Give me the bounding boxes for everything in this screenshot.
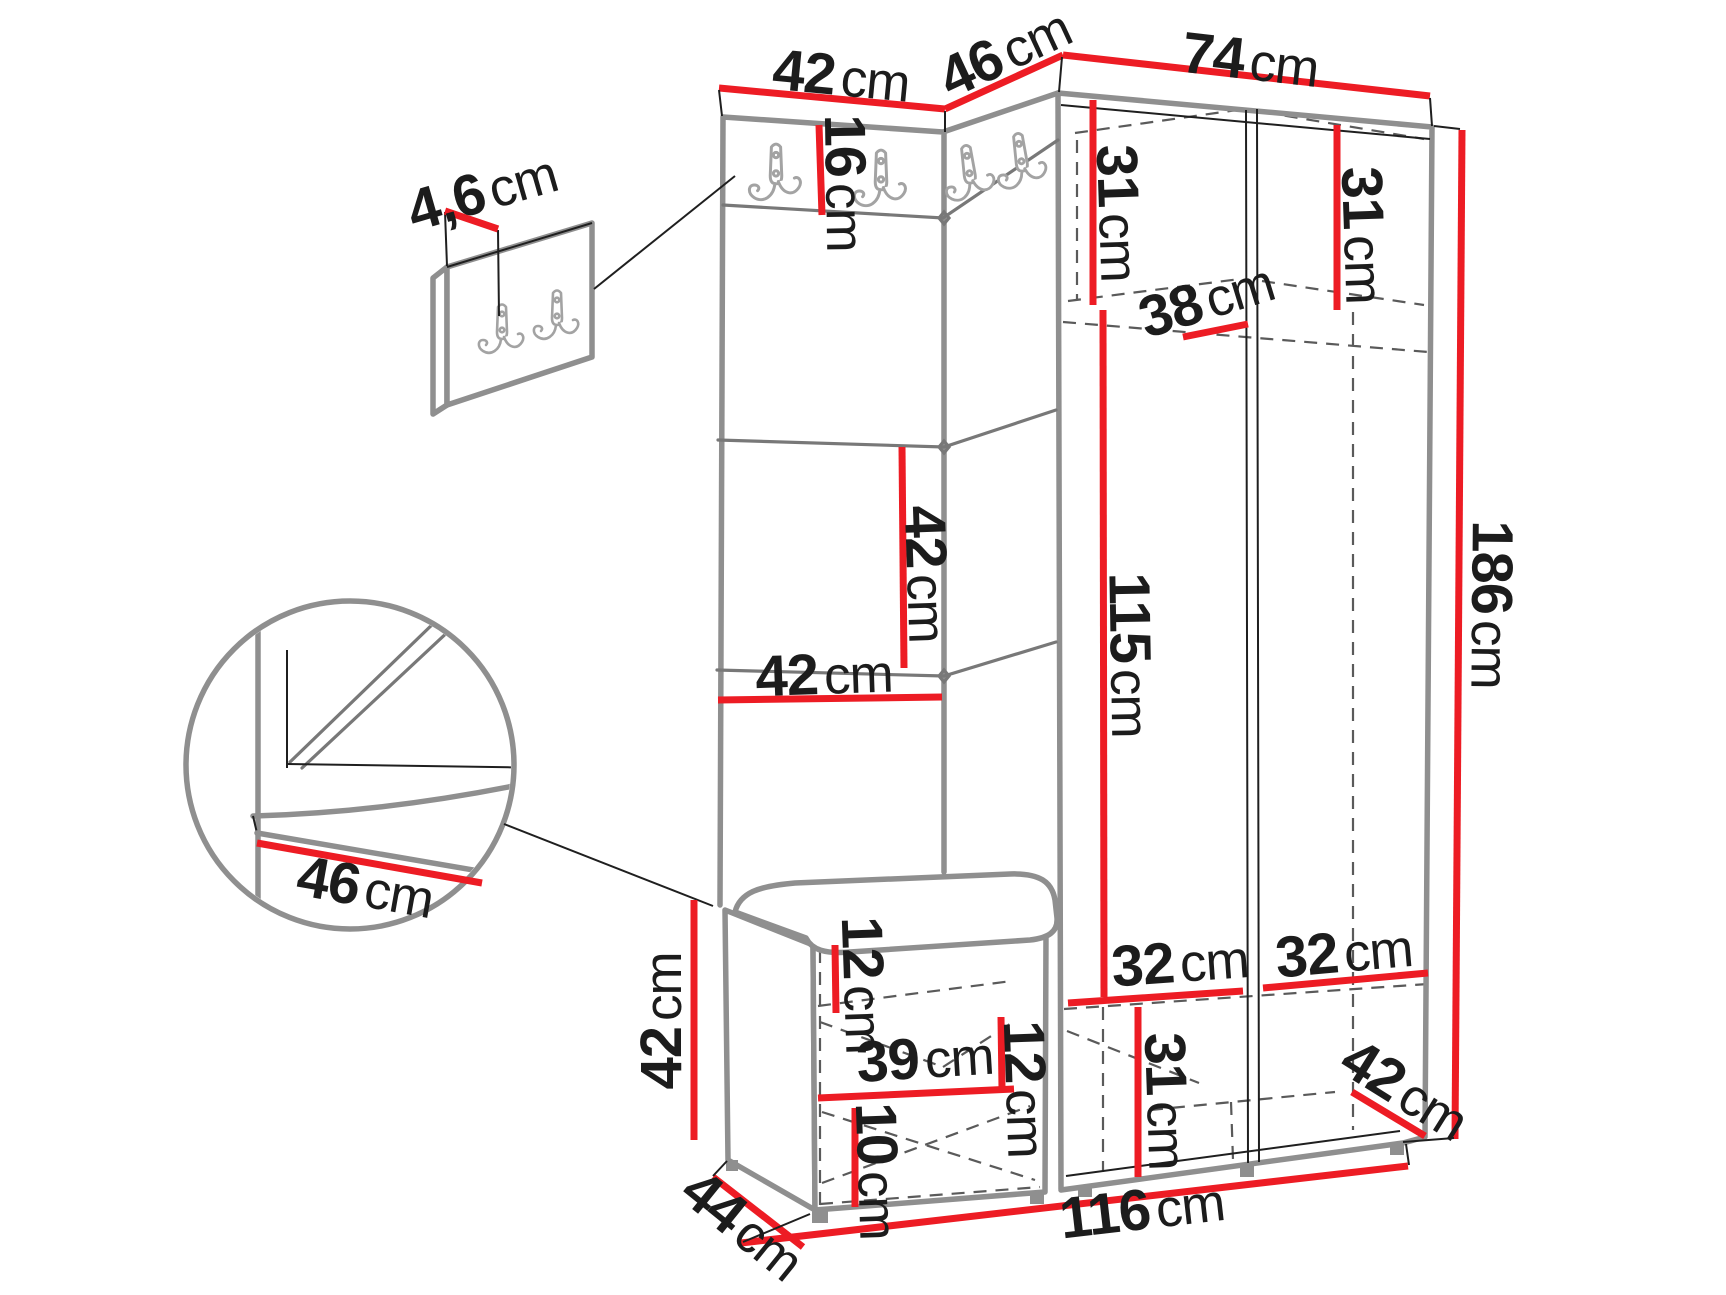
dim-value: 42 xyxy=(629,1027,694,1090)
dim-label-bottom-section-height: 31 cm xyxy=(1132,1031,1202,1170)
dim-value: 31 xyxy=(1132,1031,1199,1096)
dim-unit: cm xyxy=(994,1088,1055,1159)
dim-unit: cm xyxy=(1153,1173,1228,1239)
dim-unit: cm xyxy=(360,860,438,930)
dim-unit: cm xyxy=(846,1170,907,1241)
dim-value: 12 xyxy=(829,915,896,980)
dim-value: 31 xyxy=(1084,143,1151,208)
dim-value: 32 xyxy=(1109,930,1176,999)
bench-foot xyxy=(726,1160,738,1171)
dim-label-top-shelf-left-height: 31 cm xyxy=(1084,143,1154,282)
dim-value: 12 xyxy=(991,1019,1058,1084)
dim-unit: cm xyxy=(895,573,956,644)
dim-label-bench-shelf-offset: 12 cm xyxy=(991,1019,1061,1158)
dim-value: 42 xyxy=(892,504,959,569)
dim-unit: cm xyxy=(634,952,693,1021)
dim-label-bench-bottom-height: 10 cm xyxy=(843,1101,913,1240)
circle-leader-line xyxy=(504,824,713,906)
dim-value: 186 xyxy=(1459,520,1525,614)
dim-label-hook-panel-thickness: 4,6 cm xyxy=(400,140,564,244)
dim-label-cushion-height: 42 cm xyxy=(892,504,962,643)
dim-unit: cm xyxy=(1087,212,1148,283)
dim-value: 42 xyxy=(770,37,838,108)
dim-unit: cm xyxy=(482,144,564,220)
dim-unit: cm xyxy=(993,0,1080,81)
dim-value: 115 xyxy=(1096,572,1163,664)
bench-foot xyxy=(812,1210,828,1223)
dim-label-open-section-height: 115 cm xyxy=(1096,572,1164,738)
dim-label-bench-height: 42 cm xyxy=(629,952,694,1089)
dim-unit: cm xyxy=(1459,620,1519,689)
detail-leader-line xyxy=(594,176,735,289)
dim-label-total-height: 186 cm xyxy=(1458,520,1524,689)
dim-value: 42 xyxy=(754,642,819,709)
dim-value: 46 xyxy=(292,843,365,918)
dim-unit: cm xyxy=(814,182,874,252)
diagram-canvas: 42 cm 46 cm 74 cm 4,6 cm 16 cm 31 cm 31 … xyxy=(0,0,1726,1295)
dim-label-cushion-width: 42 cm xyxy=(754,640,893,710)
dim-unit: cm xyxy=(838,48,912,113)
dim-value: 116 xyxy=(1056,1177,1153,1252)
dim-unit: cm xyxy=(1099,668,1159,738)
bench-left-side xyxy=(725,910,815,1210)
bench-foot xyxy=(1030,1192,1044,1204)
furniture-dimension-diagram: 42 cm 46 cm 74 cm 4,6 cm 16 cm 31 cm 31 … xyxy=(0,0,1726,1295)
dim-value: 16 xyxy=(812,114,878,178)
dim-value: 31 xyxy=(1329,165,1396,230)
dim-value: 10 xyxy=(843,1101,910,1166)
dim-unit: cm xyxy=(1341,919,1415,984)
wardrobe-foot xyxy=(1240,1166,1254,1177)
dim-value: 32 xyxy=(1273,920,1341,990)
dim-value: 4,6 xyxy=(400,160,493,244)
dim-unit: cm xyxy=(1178,930,1251,994)
dim-label-wardrobe-top-width: 74 cm xyxy=(1179,20,1323,100)
dim-label-panel-top-width: 42 cm xyxy=(770,37,913,115)
dim-unit: cm xyxy=(823,645,894,706)
wardrobe-foot xyxy=(1390,1144,1404,1155)
dim-unit: cm xyxy=(1332,234,1393,305)
dim-unit: cm xyxy=(923,1027,995,1090)
dim-label-hook-header-height: 16 cm xyxy=(812,114,879,252)
dim-value: 39 xyxy=(854,1026,920,1095)
dim-label-top-shelf-right-height: 31 cm xyxy=(1329,165,1399,304)
dim-unit: cm xyxy=(1247,33,1322,99)
dim-unit: cm xyxy=(1135,1100,1196,1171)
hook-panel-front xyxy=(447,223,592,405)
dim-value: 74 xyxy=(1179,20,1249,92)
